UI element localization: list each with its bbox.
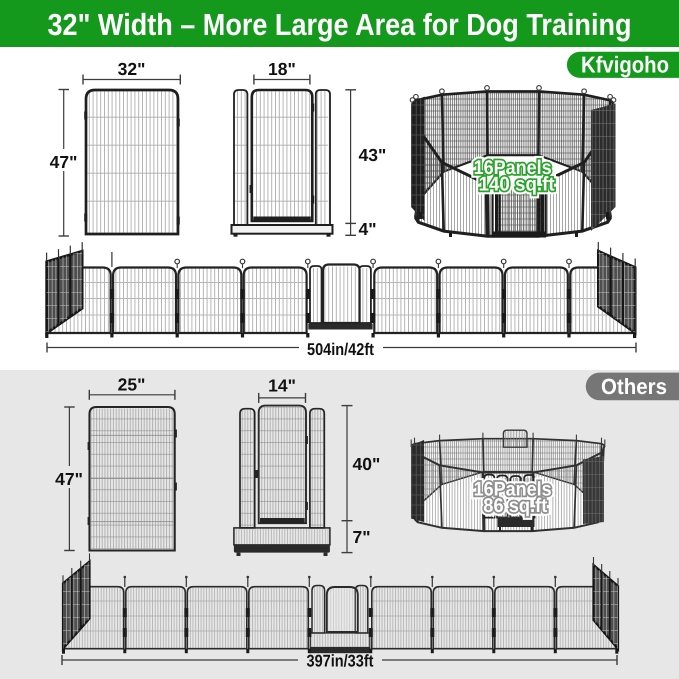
svg-text:Kfvigoho: Kfvigoho: [581, 52, 669, 78]
svg-text:140 sq.ft: 140 sq.ft: [479, 174, 555, 196]
svg-text:14": 14": [268, 376, 296, 396]
svg-text:47": 47": [50, 152, 78, 172]
svg-text:4": 4": [359, 219, 377, 239]
svg-text:40": 40": [353, 454, 381, 474]
svg-text:32": 32": [118, 59, 146, 79]
svg-text:32" Width – More Large Area fo: 32" Width – More Large Area for Dog Trai…: [48, 8, 632, 42]
svg-text:Others: Others: [601, 374, 667, 399]
svg-text:47": 47": [55, 469, 83, 489]
svg-text:86 sq.ft: 86 sq.ft: [483, 495, 547, 517]
svg-text:18": 18": [268, 59, 296, 79]
svg-text:43": 43": [359, 145, 387, 165]
svg-text:504in/42ft: 504in/42ft: [307, 340, 374, 359]
svg-text:7": 7": [353, 527, 371, 547]
svg-text:397in/33ft: 397in/33ft: [307, 652, 374, 671]
svg-text:25": 25": [118, 375, 146, 395]
